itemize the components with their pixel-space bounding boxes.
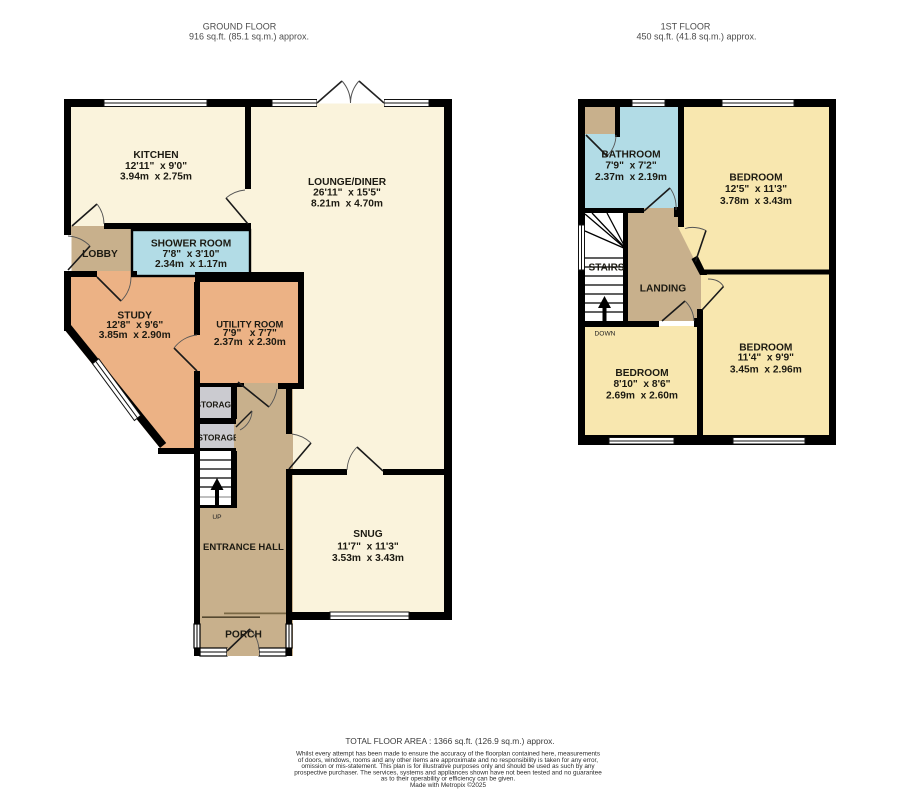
svg-text:26'11" x 15'5": 26'11" x 15'5" [313,188,381,199]
svg-text:916 sq.ft. (85.1 sq.m.) approx: 916 sq.ft. (85.1 sq.m.) approx. [189,32,309,42]
svg-text:2.37m x 2.30m: 2.37m x 2.30m [214,337,286,348]
svg-text:BEDROOM: BEDROOM [729,173,782,184]
svg-text:3.45m x 2.96m: 3.45m x 2.96m [730,364,802,375]
svg-text:3.85m x 2.90m: 3.85m x 2.90m [99,330,171,341]
svg-text:BEDROOM: BEDROOM [615,368,668,379]
svg-text:SHOWER ROOM: SHOWER ROOM [151,238,231,249]
svg-text:8'10" x 8'6": 8'10" x 8'6" [614,379,671,390]
svg-text:UP: UP [212,514,222,521]
svg-text:Made with Metropix ©2025: Made with Metropix ©2025 [410,781,487,789]
svg-text:2.34m x 1.17m: 2.34m x 1.17m [155,259,227,270]
svg-text:3.53m x 3.43m: 3.53m x 3.43m [332,553,404,564]
svg-text:12'5" x 11'3": 12'5" x 11'3" [725,184,787,195]
svg-text:3.94m x 2.75m: 3.94m x 2.75m [120,172,192,183]
svg-text:1ST FLOOR: 1ST FLOOR [661,22,711,32]
svg-text:SNUG: SNUG [353,529,383,540]
svg-text:LOUNGE/DINER: LOUNGE/DINER [308,177,387,188]
svg-text:PORCH: PORCH [225,630,262,641]
svg-text:LANDING: LANDING [640,284,686,295]
svg-text:11'7" x 11'3": 11'7" x 11'3" [337,542,399,553]
svg-text:3.78m x 3.43m: 3.78m x 3.43m [720,196,792,207]
svg-text:7'9" x 7'2": 7'9" x 7'2" [605,161,656,172]
svg-text:TOTAL FLOOR AREA : 1366 sq.ft.: TOTAL FLOOR AREA : 1366 sq.ft. (126.9 sq… [345,736,554,746]
svg-text:KITCHEN: KITCHEN [133,150,178,161]
svg-text:GROUND FLOOR: GROUND FLOOR [203,22,277,32]
svg-text:STORAGE: STORAGE [195,400,237,410]
svg-text:BEDROOM: BEDROOM [739,342,792,353]
svg-text:STAIRS: STAIRS [589,263,625,274]
svg-text:DOWN: DOWN [595,331,616,338]
svg-text:8.21m x 4.70m: 8.21m x 4.70m [311,199,383,210]
svg-text:STORAGE: STORAGE [197,433,239,443]
svg-text:450 sq.ft. (41.8 sq.m.) approx: 450 sq.ft. (41.8 sq.m.) approx. [636,32,756,42]
svg-text:BATHROOM: BATHROOM [601,149,660,160]
svg-text:2.37m x 2.19m: 2.37m x 2.19m [595,172,667,183]
svg-text:12'11" x 9'0": 12'11" x 9'0" [125,161,187,172]
svg-text:11'4" x 9'9": 11'4" x 9'9" [738,353,795,364]
svg-text:LOBBY: LOBBY [82,249,118,260]
svg-text:ENTRANCE HALL: ENTRANCE HALL [203,542,284,553]
svg-text:2.69m x 2.60m: 2.69m x 2.60m [606,390,678,401]
